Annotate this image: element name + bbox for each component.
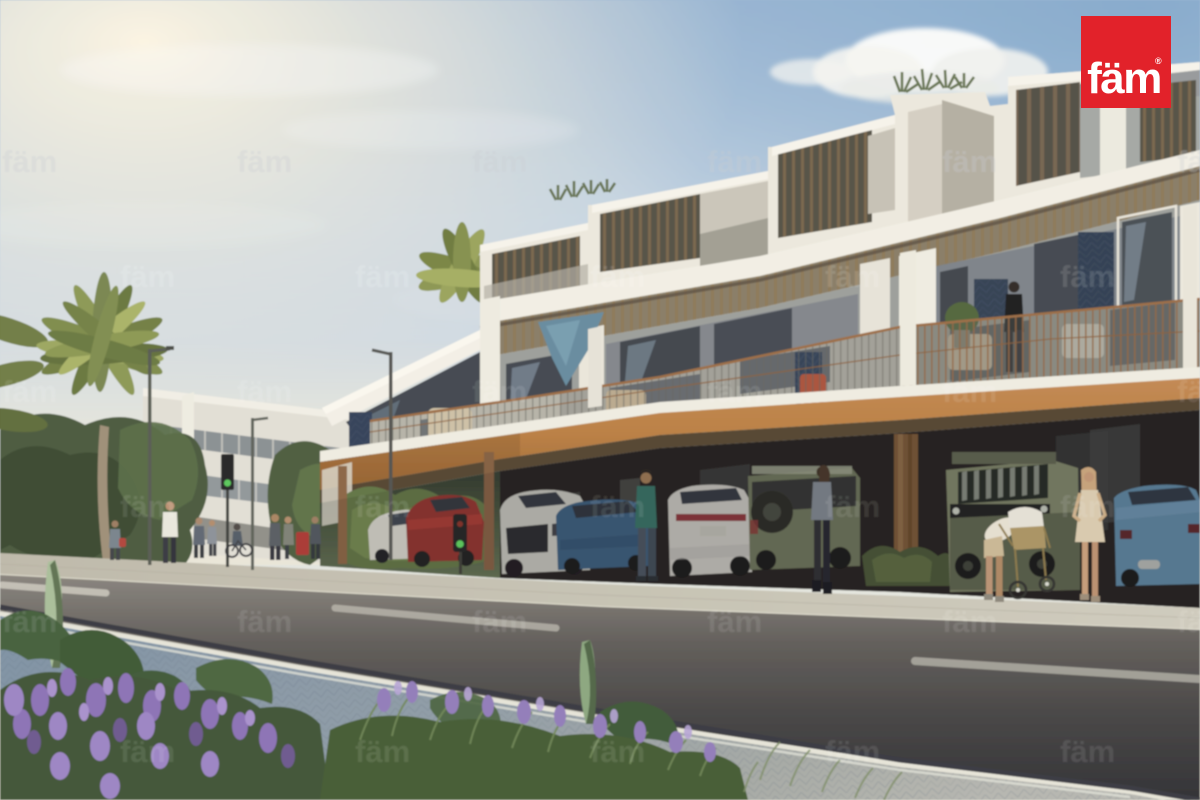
svg-text:fäm: fäm xyxy=(237,604,292,639)
svg-text:fäm: fäm xyxy=(472,604,527,639)
svg-text:fäm: fäm xyxy=(942,374,997,409)
svg-text:fäm: fäm xyxy=(237,374,292,409)
svg-text:fäm: fäm xyxy=(1060,489,1115,524)
svg-text:fäm: fäm xyxy=(355,259,410,294)
svg-text:fäm: fäm xyxy=(120,489,175,524)
svg-text:fäm: fäm xyxy=(237,144,292,179)
svg-text:fäm: fäm xyxy=(1087,54,1161,103)
svg-text:fäm: fäm xyxy=(1177,144,1200,179)
svg-text:fäm: fäm xyxy=(355,489,410,524)
svg-text:fäm: fäm xyxy=(590,734,645,769)
svg-text:fäm: fäm xyxy=(472,144,527,179)
svg-text:fäm: fäm xyxy=(707,604,762,639)
svg-text:fäm: fäm xyxy=(825,489,880,524)
svg-text:fäm: fäm xyxy=(590,259,645,294)
svg-text:fäm: fäm xyxy=(1060,259,1115,294)
svg-text:fäm: fäm xyxy=(2,374,57,409)
svg-text:fäm: fäm xyxy=(590,489,645,524)
svg-text:fäm: fäm xyxy=(942,604,997,639)
svg-text:fäm: fäm xyxy=(942,144,997,179)
svg-text:fäm: fäm xyxy=(825,259,880,294)
svg-text:fäm: fäm xyxy=(2,604,57,639)
svg-text:fäm: fäm xyxy=(825,734,880,769)
svg-text:fäm: fäm xyxy=(1177,374,1200,409)
svg-text:®: ® xyxy=(1155,56,1162,66)
svg-text:fäm: fäm xyxy=(1177,604,1200,639)
svg-text:fäm: fäm xyxy=(2,144,57,179)
svg-text:fäm: fäm xyxy=(120,259,175,294)
svg-text:fäm: fäm xyxy=(472,374,527,409)
svg-text:fäm: fäm xyxy=(1060,734,1115,769)
svg-text:fäm: fäm xyxy=(120,734,175,769)
svg-text:fäm: fäm xyxy=(707,374,762,409)
svg-text:fäm: fäm xyxy=(707,144,762,179)
svg-text:fäm: fäm xyxy=(355,734,410,769)
